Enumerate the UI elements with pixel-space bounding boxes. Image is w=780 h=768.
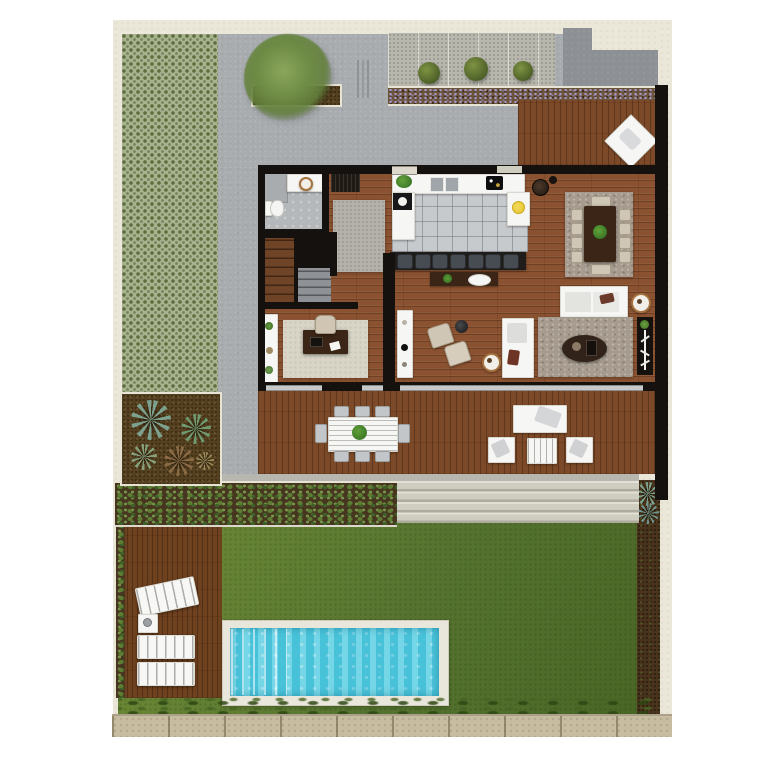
dining-chairs-right bbox=[619, 209, 629, 263]
sideboard-object-1 bbox=[401, 344, 408, 351]
dining-chair bbox=[619, 209, 631, 221]
dining-chair bbox=[571, 223, 583, 235]
hall-wardrobe bbox=[331, 174, 360, 192]
drive-step-line-1 bbox=[357, 60, 359, 98]
outdoor-chair-right-end bbox=[398, 424, 410, 443]
outdoor-table-plant bbox=[352, 425, 367, 440]
living-sofa-pillow bbox=[507, 349, 520, 365]
deck-edge-weeds bbox=[116, 522, 125, 698]
outdoor-chairs-top bbox=[334, 406, 390, 415]
shower-area bbox=[265, 174, 288, 203]
grass-tufts-strip bbox=[118, 696, 662, 716]
outdoor-chair bbox=[375, 406, 390, 417]
outdoor-chair bbox=[355, 406, 370, 417]
stair-flight-gray bbox=[298, 268, 331, 304]
dining-chair bbox=[619, 251, 631, 263]
dining-chair bbox=[619, 237, 631, 249]
round-pouf-center bbox=[482, 353, 501, 372]
dry-fern-plant bbox=[164, 446, 194, 476]
glass-wall-living bbox=[400, 385, 643, 391]
agave-plant-3 bbox=[131, 444, 157, 470]
island-stools bbox=[397, 254, 519, 268]
garden-bush-2 bbox=[464, 57, 488, 81]
glass-door-office bbox=[266, 385, 322, 391]
desk-laptop bbox=[310, 337, 323, 347]
kitchen-sink-left bbox=[430, 177, 444, 192]
outdoor-chair-left-end bbox=[315, 424, 327, 443]
vanity-sink bbox=[299, 177, 313, 191]
sideboard-object-2 bbox=[402, 362, 407, 367]
drive-step-line-2 bbox=[362, 60, 364, 98]
glass-door-mid bbox=[362, 385, 383, 391]
coffee-table-oval bbox=[562, 335, 607, 362]
round-pouf-right-center bbox=[637, 299, 642, 304]
outdoor-chair bbox=[355, 451, 370, 462]
round-pouf-center-dot bbox=[487, 358, 492, 363]
pool-side-table-kettle bbox=[143, 618, 152, 627]
office-console-vase bbox=[266, 347, 273, 354]
office-console-plant-1 bbox=[265, 322, 273, 330]
wall-stairs-east bbox=[330, 232, 337, 276]
loveseat-cushion-left bbox=[565, 292, 591, 312]
feature-wall-plant bbox=[640, 320, 649, 329]
lemon-bowl bbox=[512, 201, 525, 214]
garden-bush-3 bbox=[513, 61, 533, 81]
wall-mid-vertical bbox=[383, 253, 395, 386]
outdoor-chair bbox=[375, 451, 390, 462]
side-table-round-large bbox=[532, 179, 549, 196]
outdoor-chair bbox=[334, 406, 349, 417]
floor-plan-canvas bbox=[0, 0, 780, 768]
dining-chair bbox=[571, 251, 583, 263]
coffee-table-tray-1 bbox=[572, 342, 581, 351]
garden-bush-1 bbox=[418, 62, 440, 84]
console-plant bbox=[443, 274, 452, 283]
pool-steps bbox=[231, 629, 287, 695]
tree-canopy bbox=[244, 34, 332, 122]
office-chair bbox=[315, 315, 336, 334]
retaining-stone-wall bbox=[112, 714, 672, 737]
outdoor-coffee-table bbox=[527, 438, 557, 464]
outdoor-chair bbox=[334, 451, 349, 462]
kitchen-window bbox=[392, 166, 417, 175]
dining-chair-foot bbox=[591, 264, 611, 275]
side-table-round-small bbox=[549, 176, 557, 184]
wall-north bbox=[258, 165, 657, 174]
bar-stool bbox=[432, 254, 448, 269]
bar-stool bbox=[468, 254, 484, 269]
kitchen-herb-plant bbox=[396, 175, 412, 188]
dining-table-plant bbox=[593, 225, 607, 239]
wall-west bbox=[258, 165, 265, 391]
cooktop bbox=[486, 176, 503, 190]
neighbor-notch bbox=[592, 28, 658, 50]
coffee-table-tray-2 bbox=[586, 340, 597, 356]
hallway-rug bbox=[333, 200, 385, 272]
dining-chair bbox=[571, 237, 583, 249]
palm-plant-2 bbox=[638, 503, 659, 524]
garden-steps bbox=[396, 481, 639, 523]
wall-stairs-north bbox=[264, 232, 334, 238]
bar-stool bbox=[397, 254, 413, 269]
armchair-side-table bbox=[455, 320, 468, 333]
agave-plant-2 bbox=[181, 414, 211, 444]
dining-chair bbox=[571, 209, 583, 221]
wall-east-boundary bbox=[655, 85, 668, 500]
office-console-plant-2 bbox=[265, 366, 273, 374]
kitchen-sink-right bbox=[445, 177, 459, 192]
dining-chair bbox=[619, 223, 631, 235]
sun-lounger-2 bbox=[137, 635, 195, 659]
console-bowl bbox=[468, 274, 491, 286]
bar-stool bbox=[503, 254, 519, 269]
dining-chairs-left bbox=[571, 209, 581, 263]
outdoor-chairs-bottom bbox=[334, 451, 390, 460]
bar-stool bbox=[450, 254, 466, 269]
stair-flight-wood bbox=[264, 238, 294, 304]
side-path bbox=[218, 165, 258, 482]
bar-stool bbox=[415, 254, 431, 269]
bar-stool bbox=[485, 254, 501, 269]
trellis-lawn-panel bbox=[120, 32, 222, 396]
agave-plant-1 bbox=[131, 400, 171, 440]
sun-lounger-3 bbox=[137, 662, 195, 686]
kitchen-range-sink bbox=[398, 197, 407, 206]
drive-step-line-3 bbox=[367, 60, 369, 98]
sideboard-object-3 bbox=[402, 320, 407, 325]
dry-grass-plant bbox=[196, 452, 214, 470]
wall-bath-divider bbox=[322, 174, 329, 236]
hedge-planter-strip bbox=[115, 481, 397, 527]
living-sofa-cushion bbox=[507, 323, 527, 343]
toilet-bowl bbox=[270, 200, 284, 217]
stair-void bbox=[298, 238, 331, 268]
kitchen-door-gap bbox=[497, 166, 522, 173]
wall-office-north bbox=[258, 302, 358, 309]
